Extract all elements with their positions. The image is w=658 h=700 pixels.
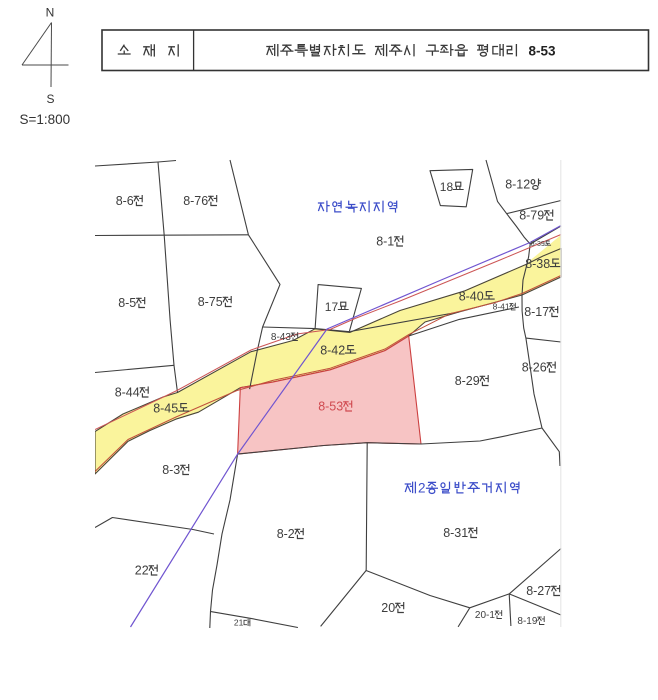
svg-text:8-1: 8-1 xyxy=(376,234,394,248)
svg-text:22: 22 xyxy=(135,563,149,577)
svg-text:8-42: 8-42 xyxy=(320,343,345,357)
svg-text:8-40: 8-40 xyxy=(459,289,484,303)
svg-text:8-29: 8-29 xyxy=(455,374,480,388)
svg-text:8-43: 8-43 xyxy=(271,332,291,343)
svg-text:S=1:800: S=1:800 xyxy=(20,112,71,127)
svg-text:8-5: 8-5 xyxy=(118,296,136,310)
svg-text:8-79: 8-79 xyxy=(519,208,544,222)
svg-text:8-75: 8-75 xyxy=(198,295,223,309)
svg-text:17: 17 xyxy=(325,300,339,314)
svg-text:8-38: 8-38 xyxy=(525,257,550,271)
svg-text:8-27: 8-27 xyxy=(526,584,551,598)
svg-text:8-3: 8-3 xyxy=(162,463,180,477)
svg-text:21: 21 xyxy=(234,618,244,628)
svg-text:8-76: 8-76 xyxy=(183,194,208,208)
svg-text:8-41: 8-41 xyxy=(493,302,510,312)
svg-text:8-19: 8-19 xyxy=(517,616,537,627)
svg-text:20: 20 xyxy=(381,601,395,615)
svg-text:20-1: 20-1 xyxy=(475,610,495,621)
svg-text:8-39: 8-39 xyxy=(531,241,545,248)
svg-text:8-6: 8-6 xyxy=(116,194,134,208)
svg-text:N: N xyxy=(46,6,55,20)
svg-text:S: S xyxy=(46,92,54,106)
svg-text:8-53: 8-53 xyxy=(529,43,557,58)
svg-text:8-44: 8-44 xyxy=(115,385,140,399)
svg-text:8-12: 8-12 xyxy=(505,177,530,191)
svg-text:8-53: 8-53 xyxy=(318,399,343,413)
svg-text:8-26: 8-26 xyxy=(522,360,547,374)
svg-text:18: 18 xyxy=(440,180,454,194)
svg-text:8-31: 8-31 xyxy=(443,526,468,540)
svg-text:8-17: 8-17 xyxy=(524,305,549,319)
svg-text:8-2: 8-2 xyxy=(277,527,295,541)
svg-text:2: 2 xyxy=(418,480,426,495)
svg-text:8-45: 8-45 xyxy=(153,401,178,415)
